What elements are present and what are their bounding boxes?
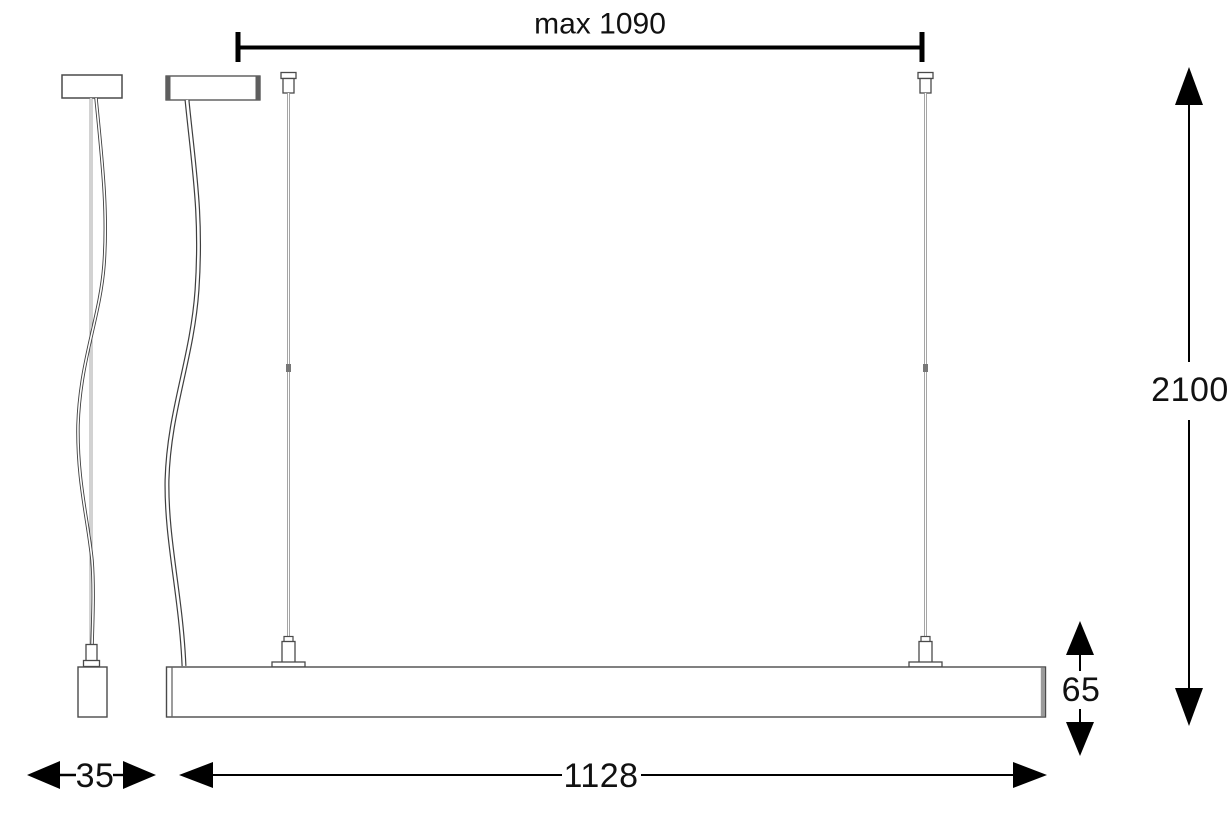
front-canopy bbox=[166, 76, 260, 100]
dim-body-height-arrow-down bbox=[1066, 722, 1094, 756]
dim-max-suspension: max 1090 bbox=[236, 8, 924, 63]
dimension-drawing: max 1090 2100 65 1128 35 bbox=[0, 0, 1230, 814]
dim-profile-width-arrow-left bbox=[27, 761, 60, 789]
side-view bbox=[62, 75, 122, 717]
side-cable-gland bbox=[86, 645, 97, 663]
suspension-right bbox=[909, 73, 942, 668]
dim-total-drop: 2100 bbox=[1151, 67, 1229, 726]
front-canopy-endcap-left bbox=[166, 76, 171, 100]
front-power-cable bbox=[167, 100, 199, 666]
dim-body-length-label: 1128 bbox=[563, 757, 638, 795]
luminaire-endcap-right bbox=[1041, 668, 1045, 716]
dim-body-height-label: 65 bbox=[1062, 671, 1101, 709]
dim-body-length-arrow-right bbox=[1013, 762, 1047, 788]
wire-grip-base-right bbox=[909, 662, 942, 667]
wire-grip-base-left bbox=[272, 662, 305, 667]
dim-profile-width-arrow-right bbox=[123, 761, 156, 789]
dim-body-height: 65 bbox=[1062, 621, 1101, 756]
front-view bbox=[166, 73, 1046, 718]
front-canopy-endcap-right bbox=[256, 76, 261, 100]
side-gland-flange bbox=[84, 661, 100, 667]
ceiling-fixing-flange-left bbox=[281, 73, 296, 79]
dim-max-suspension-label: max 1090 bbox=[534, 8, 666, 41]
dim-body-height-arrow-up bbox=[1066, 621, 1094, 655]
dim-total-drop-arrow-up bbox=[1175, 67, 1203, 105]
dim-body-length-arrow-left bbox=[179, 762, 213, 788]
wire-grip-body-left bbox=[282, 642, 295, 663]
ceiling-fixing-body-right bbox=[920, 79, 931, 94]
wire-grip-body-right bbox=[919, 642, 932, 663]
dim-total-drop-arrow-down bbox=[1175, 688, 1203, 726]
drawing-canvas: max 1090 2100 65 1128 35 bbox=[0, 0, 1230, 814]
wire-joint-right bbox=[923, 364, 928, 372]
dim-body-length: 1128 bbox=[179, 757, 1047, 795]
dim-profile-width: 35 bbox=[27, 757, 156, 795]
dim-profile-width-label: 35 bbox=[76, 757, 115, 795]
side-canopy bbox=[62, 75, 122, 98]
ceiling-fixing-body-left bbox=[283, 79, 294, 94]
suspension-left bbox=[272, 73, 305, 668]
luminaire-body bbox=[167, 667, 1046, 717]
side-profile-body bbox=[78, 667, 107, 717]
dim-total-drop-label: 2100 bbox=[1151, 371, 1229, 409]
ceiling-fixing-flange-right bbox=[918, 73, 933, 79]
wire-joint-left bbox=[286, 364, 291, 372]
